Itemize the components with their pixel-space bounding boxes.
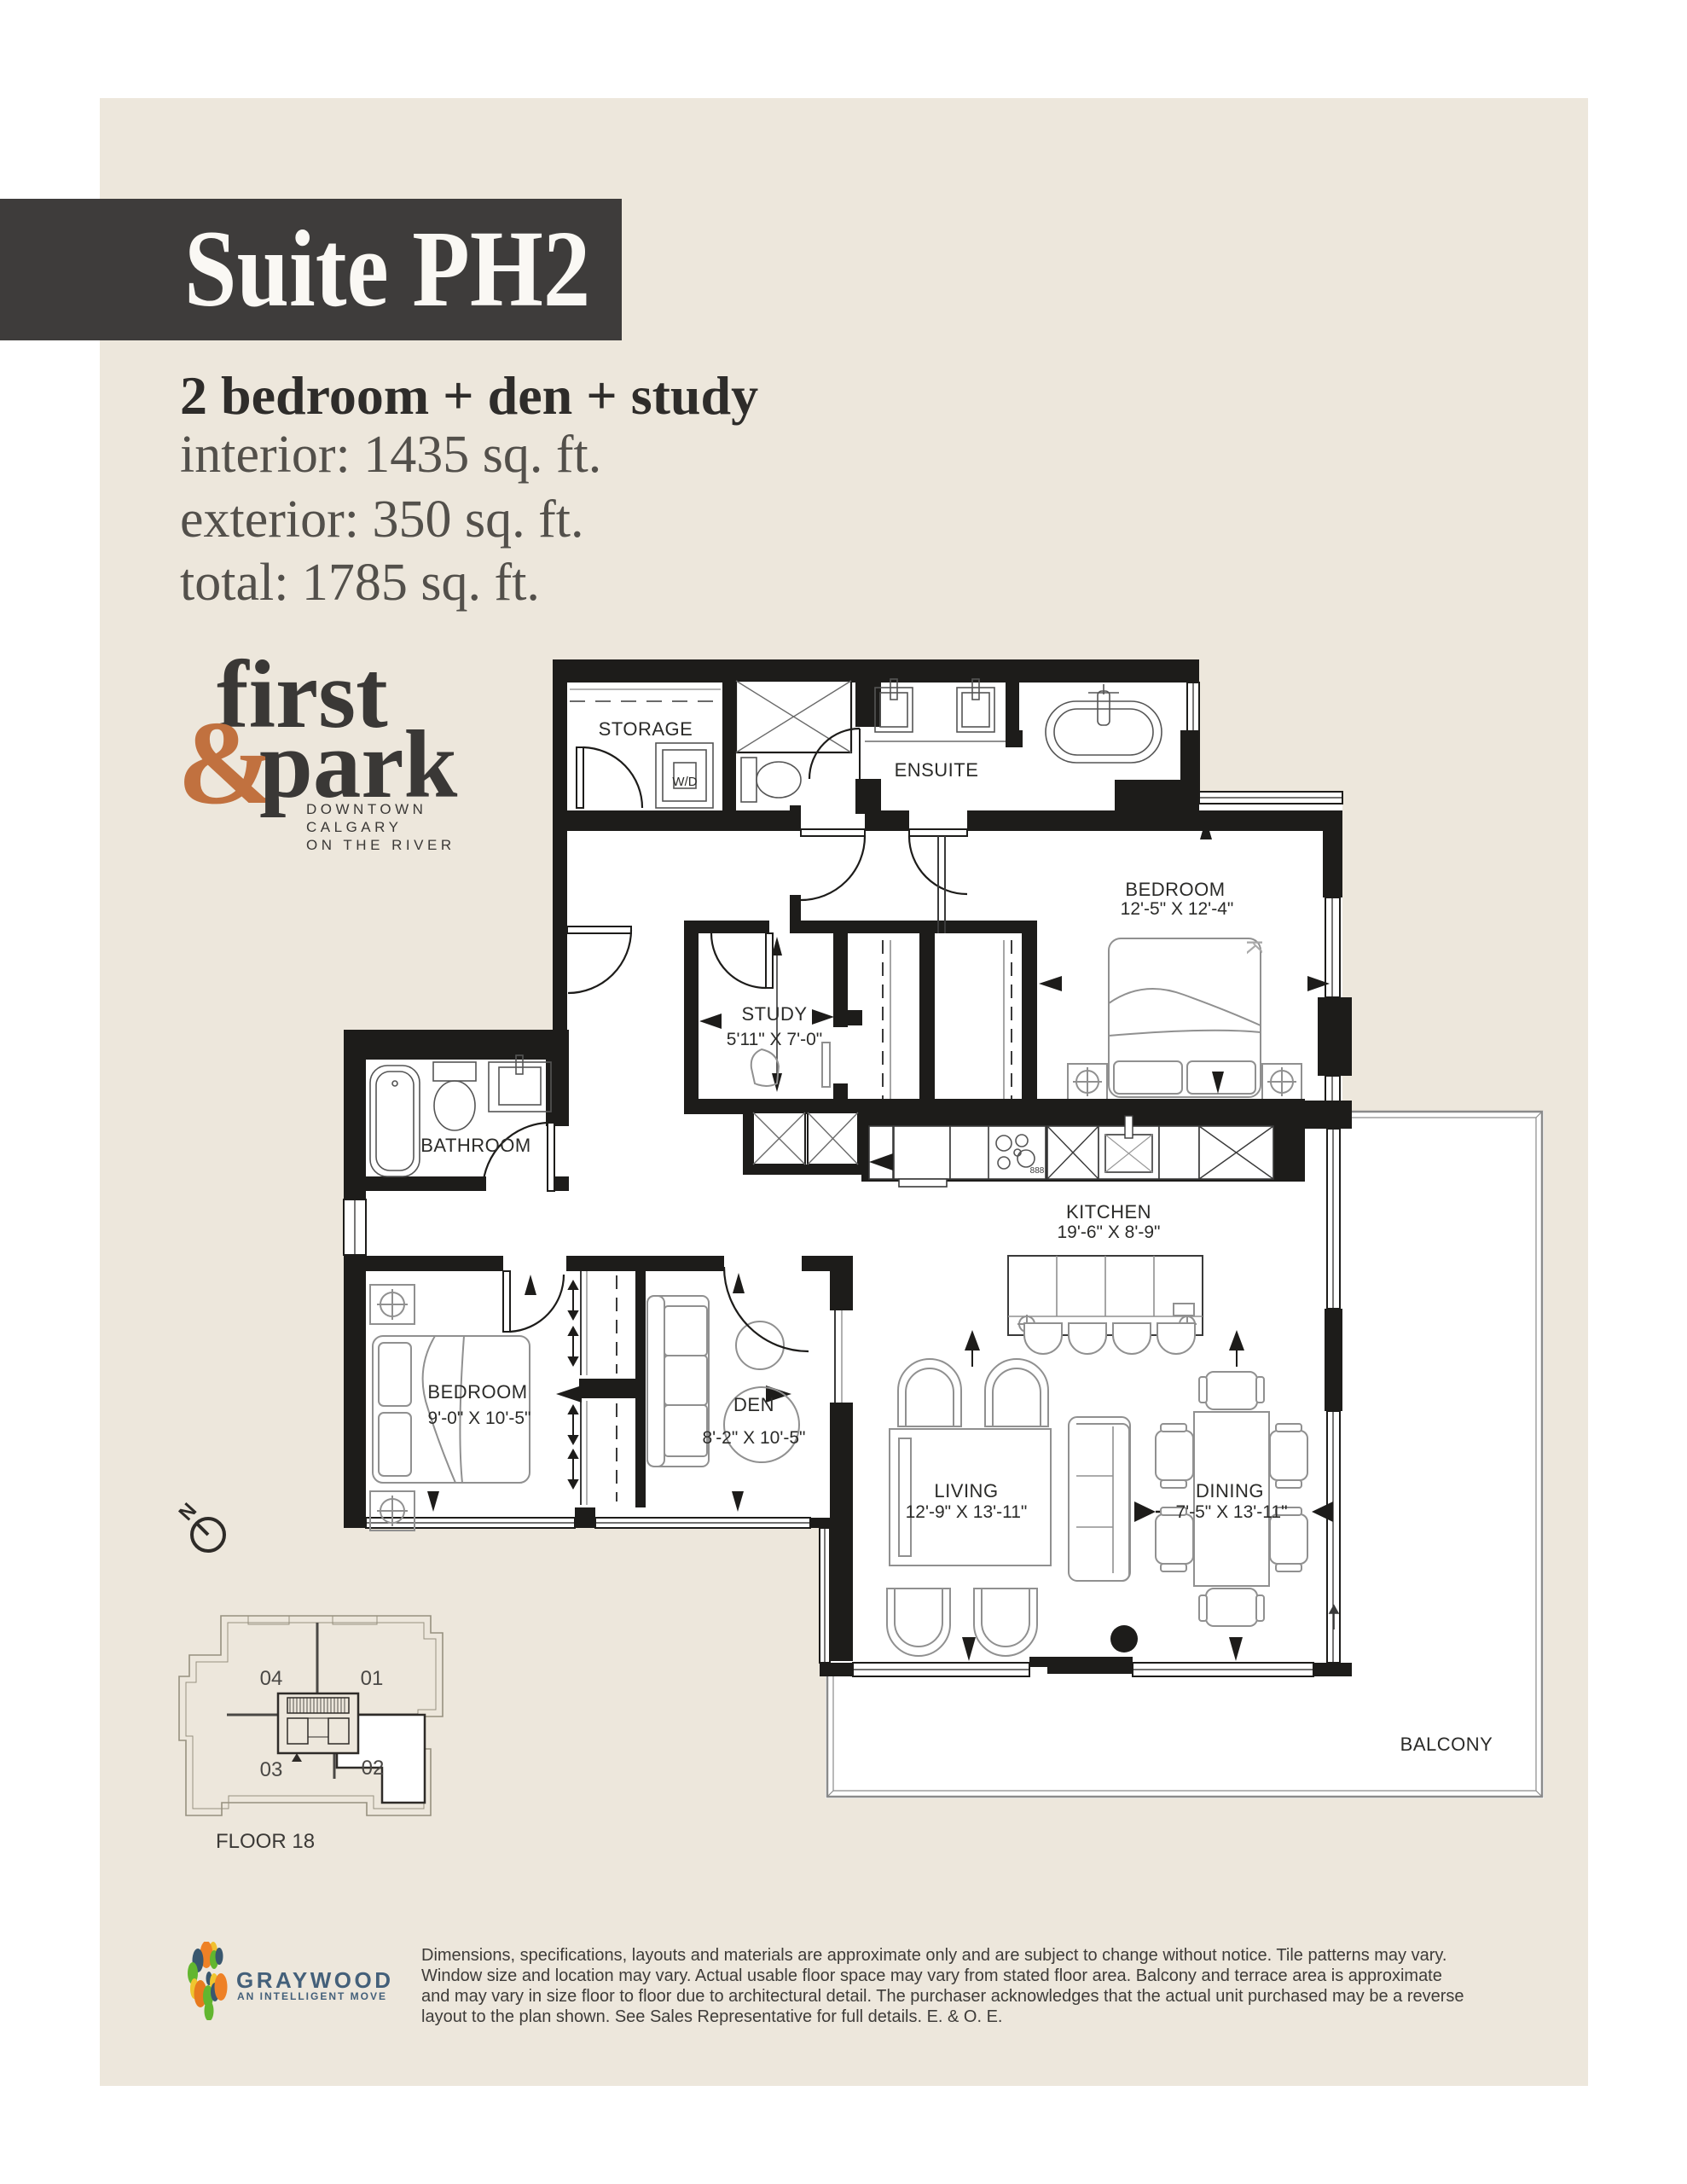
svg-text:BEDROOM: BEDROOM xyxy=(427,1381,527,1403)
svg-text:BEDROOM: BEDROOM xyxy=(1125,879,1225,900)
svg-text:BATHROOM: BATHROOM xyxy=(420,1135,530,1156)
svg-text:19'-6" X 8'-9": 19'-6" X 8'-9" xyxy=(1058,1223,1161,1242)
svg-text:W/D: W/D xyxy=(672,775,697,789)
svg-text:STORAGE: STORAGE xyxy=(599,718,693,740)
svg-text:KITCHEN: KITCHEN xyxy=(1066,1201,1151,1223)
svg-text:STUDY: STUDY xyxy=(741,1003,807,1025)
svg-text:04: 04 xyxy=(260,1667,283,1690)
svg-text:01: 01 xyxy=(361,1667,384,1690)
svg-text:FLOOR 18: FLOOR 18 xyxy=(216,1830,315,1853)
svg-text:ENSUITE: ENSUITE xyxy=(895,759,979,781)
svg-text:9'-0" X 10'-5": 9'-0" X 10'-5" xyxy=(428,1409,531,1428)
svg-text:12'-9" X 13'-11": 12'-9" X 13'-11" xyxy=(906,1502,1028,1522)
svg-text:03: 03 xyxy=(260,1758,283,1781)
svg-text:02: 02 xyxy=(362,1757,385,1780)
svg-text:8'-2" X 10'-5": 8'-2" X 10'-5" xyxy=(703,1428,806,1448)
svg-text:K: K xyxy=(1242,939,1267,955)
svg-text:DINING: DINING xyxy=(1196,1480,1264,1501)
svg-text:BALCONY: BALCONY xyxy=(1400,1734,1493,1755)
svg-text:DEN: DEN xyxy=(733,1394,774,1415)
svg-text:888: 888 xyxy=(1030,1166,1045,1176)
svg-text:5'11" X 7'-0": 5'11" X 7'-0" xyxy=(727,1030,822,1049)
svg-text:LIVING: LIVING xyxy=(934,1480,998,1501)
svg-text:7'-5" X 13'-11": 7'-5" X 13'-11" xyxy=(1175,1502,1287,1522)
svg-text:12'-5" X 12'-4": 12'-5" X 12'-4" xyxy=(1121,899,1234,919)
